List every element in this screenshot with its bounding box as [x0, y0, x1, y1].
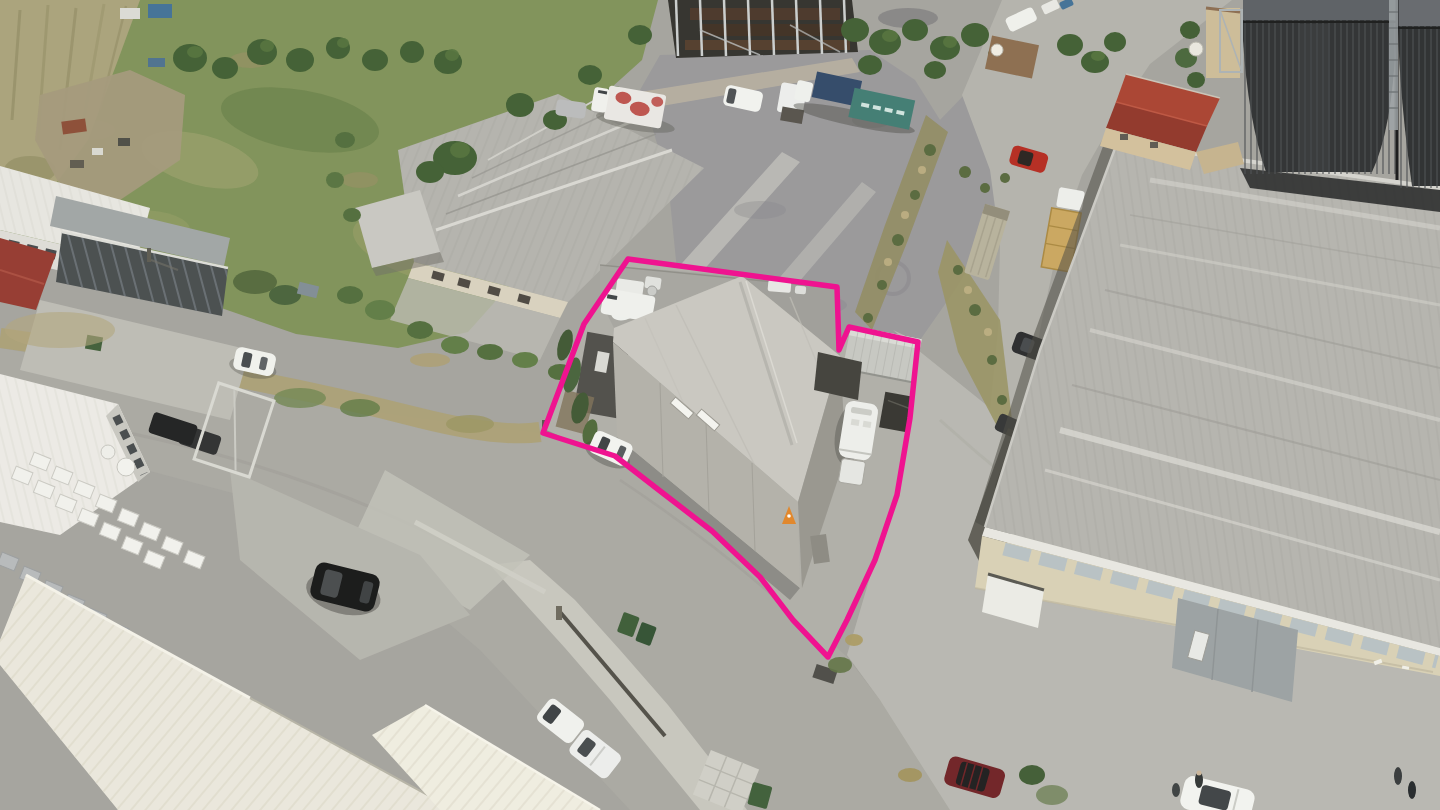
sunlight-wash: [0, 0, 1440, 810]
aerial-photo-canvas: [0, 0, 1440, 810]
aerial-photo: [0, 0, 1440, 810]
